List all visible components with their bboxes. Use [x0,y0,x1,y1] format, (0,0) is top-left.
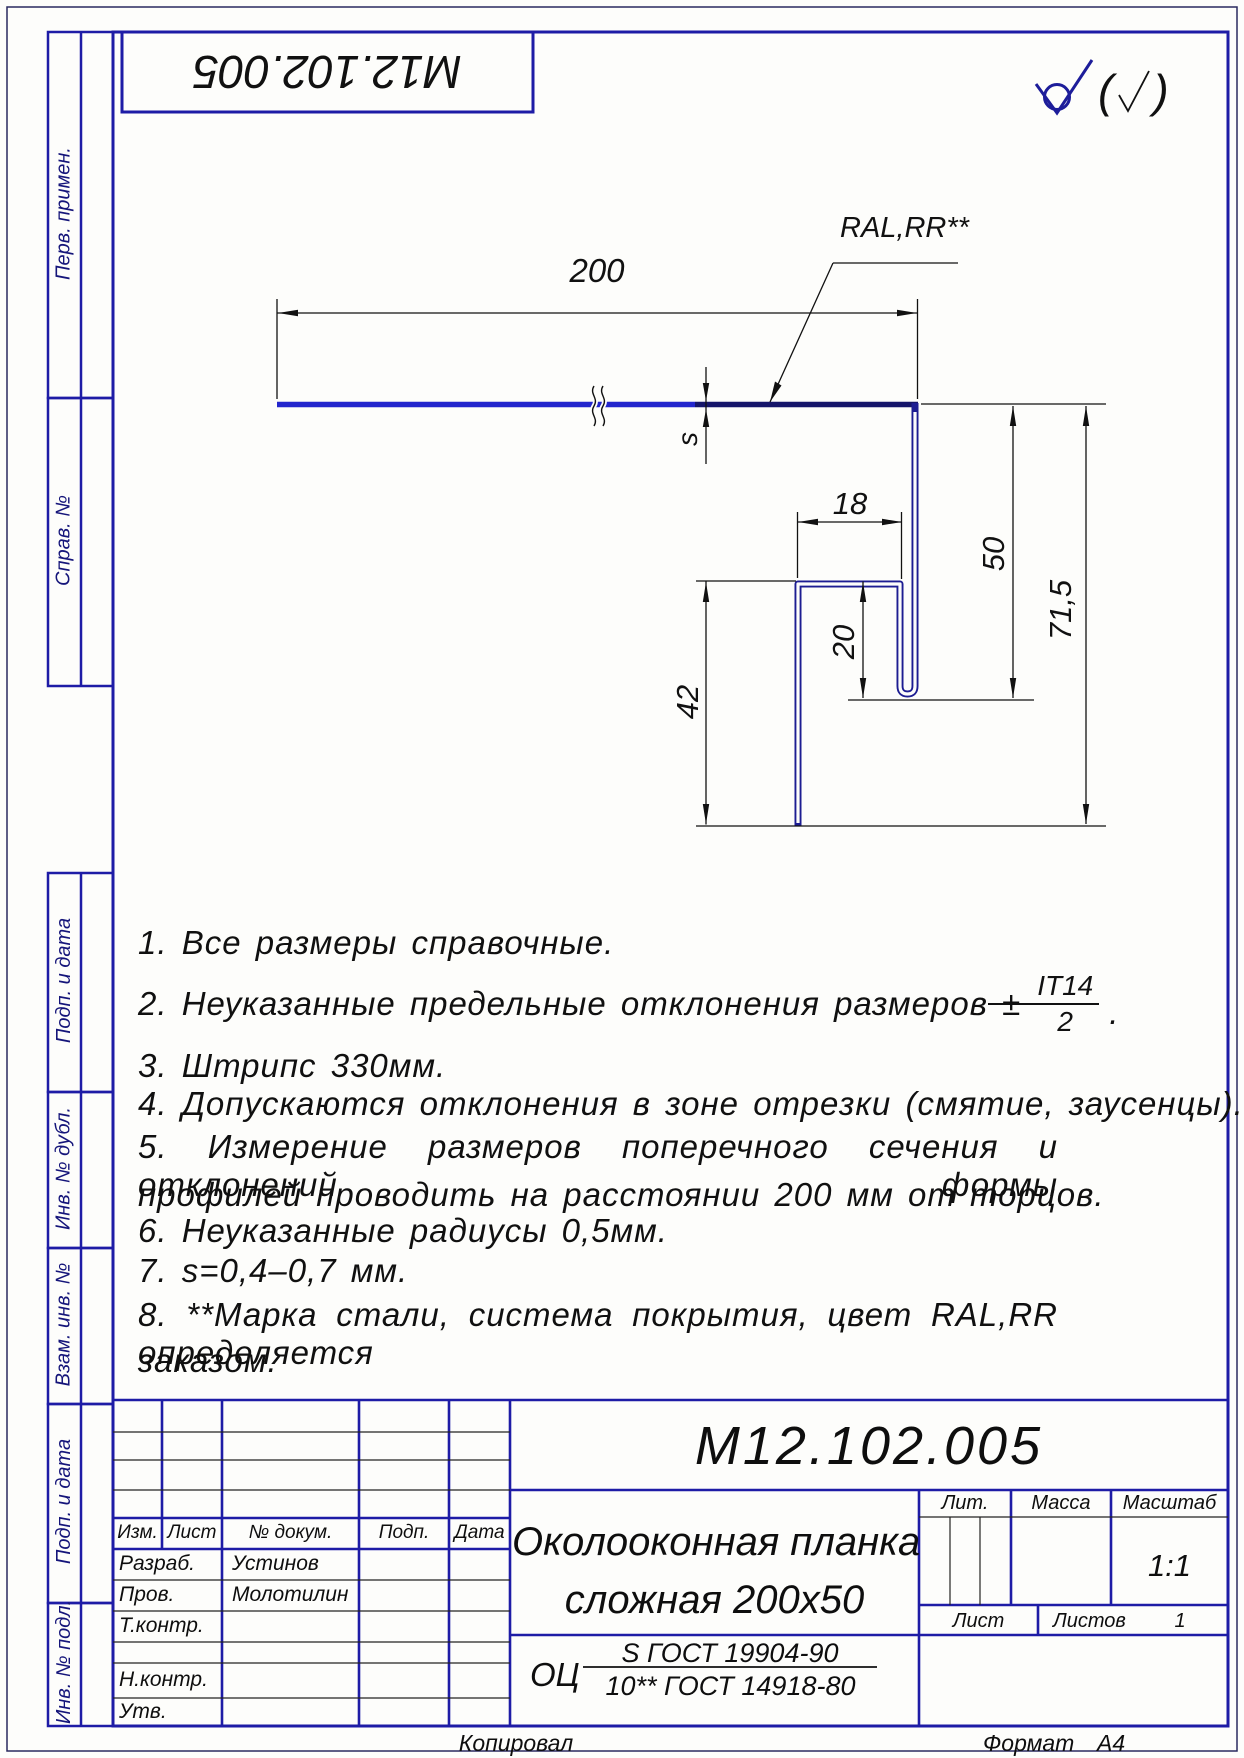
note-1: 1. Все размеры справочные. [138,924,614,962]
note-2-text: 2. Неуказанные предельные отклонения раз… [138,985,1021,1023]
note-4: 4. Допускаются отклонения в зоне отрезки… [138,1085,1244,1123]
note-7: 7. s=0,4–0,7 мм. [138,1252,408,1290]
tb-mass-label: Масса [1011,1492,1111,1515]
drawing-sheet: М12.102.005 ( ) 200 RAL,RR** s 18 42 20 … [0,0,1244,1758]
tb-header-podp: Подп. [359,1522,449,1544]
tb-header-izm: Изм. [113,1522,162,1544]
margin-label-podp-i-data-1: Подп. и дата [53,871,76,1090]
copied-label: Копировал [416,1730,616,1757]
coating-label: RAL,RR** [840,212,969,245]
tb-header-dokum: № докум. [222,1522,359,1544]
note-2: 2. Неуказанные предельные отклонения раз… [138,962,1119,1046]
dim-total-height: 71,5 [1043,540,1079,680]
note-2-frac-top: IT14 [1031,972,1099,1005]
dim-hook-height: 20 [826,592,862,692]
tb-designation: М12.102.005 [510,1415,1228,1477]
profile-geometry [277,403,918,826]
dim-hook-width: 18 [798,486,902,522]
margin-label-perv-primen: Перв. примен. [53,31,76,397]
doc-number-rotated: М12.102.005 [122,32,533,112]
surface-finish-alt: ( ) [1098,64,1169,118]
margin-label-inv-podl: Инв. № подл. [53,1601,76,1724]
note-8-line2: заказом. [138,1342,278,1380]
tb-role-utv: Утв. [119,1700,167,1724]
margin-label-podp-i-data-2: Подп. и дата [53,1402,76,1601]
margin-label-inv-dubl: Инв. № дубл. [53,1091,76,1247]
format-value: А4 [1097,1730,1125,1757]
dim-left-height: 42 [670,642,706,762]
dim-width: 200 [277,252,917,290]
tb-material-prefix: ОЦ [530,1656,580,1694]
surface-paren-open: ( [1098,64,1113,118]
tb-role-tkontr: Т.контр. [119,1614,204,1638]
check-icon [1113,67,1153,115]
tb-title-line2: сложная 200х50 [512,1578,917,1623]
surface-finish-icon [1036,60,1092,113]
tb-header-list: Лист [162,1522,222,1544]
tb-scale-value: 1:1 [1111,1548,1228,1584]
tb-material-bottom: 10** ГОСТ 14918-80 [578,1671,883,1702]
tb-sheets-value: 1 [1160,1610,1200,1633]
dim-right-height: 50 [976,494,1012,614]
margin-label-vzam-inv: Взам. инв. № [53,1247,76,1403]
note-6: 6. Неуказанные радиусы 0,5мм. [138,1212,668,1250]
tb-role-prov: Пров. [119,1583,174,1607]
margin-label-sprav-no: Справ. № [53,397,76,685]
tb-header-data: Дата [449,1522,510,1544]
format-label: Формат [983,1730,1074,1757]
tb-material-top: S ГОСТ 19904-90 [585,1638,875,1669]
dim-thickness: s [672,419,704,459]
note-5-line2: профилей проводить на расстоянии 200 мм … [138,1176,1105,1214]
tb-title-line1: Околооконная планка [512,1520,917,1565]
tb-role-razrab: Разраб. [119,1552,195,1576]
surface-paren-close: ) [1153,64,1168,118]
tb-sheets-label: Листов [1053,1610,1126,1633]
note-3: 3. Штрипс 330мм. [138,1047,446,1085]
note-2-suffix: . [1109,994,1119,1046]
tb-lit-label: Лит. [919,1492,1011,1515]
note-2-fraction: IT14 2 [1031,972,1099,1036]
tb-sheet-label: Лист [919,1610,1038,1633]
tb-scale-label: Масштаб [1111,1492,1228,1515]
tb-role-nkontr: Н.контр. [119,1668,208,1692]
tb-name-prov: Молотилин [232,1583,348,1607]
tb-name-razrab: Устинов [232,1552,319,1576]
note-2-frac-bottom: 2 [1057,1005,1073,1036]
